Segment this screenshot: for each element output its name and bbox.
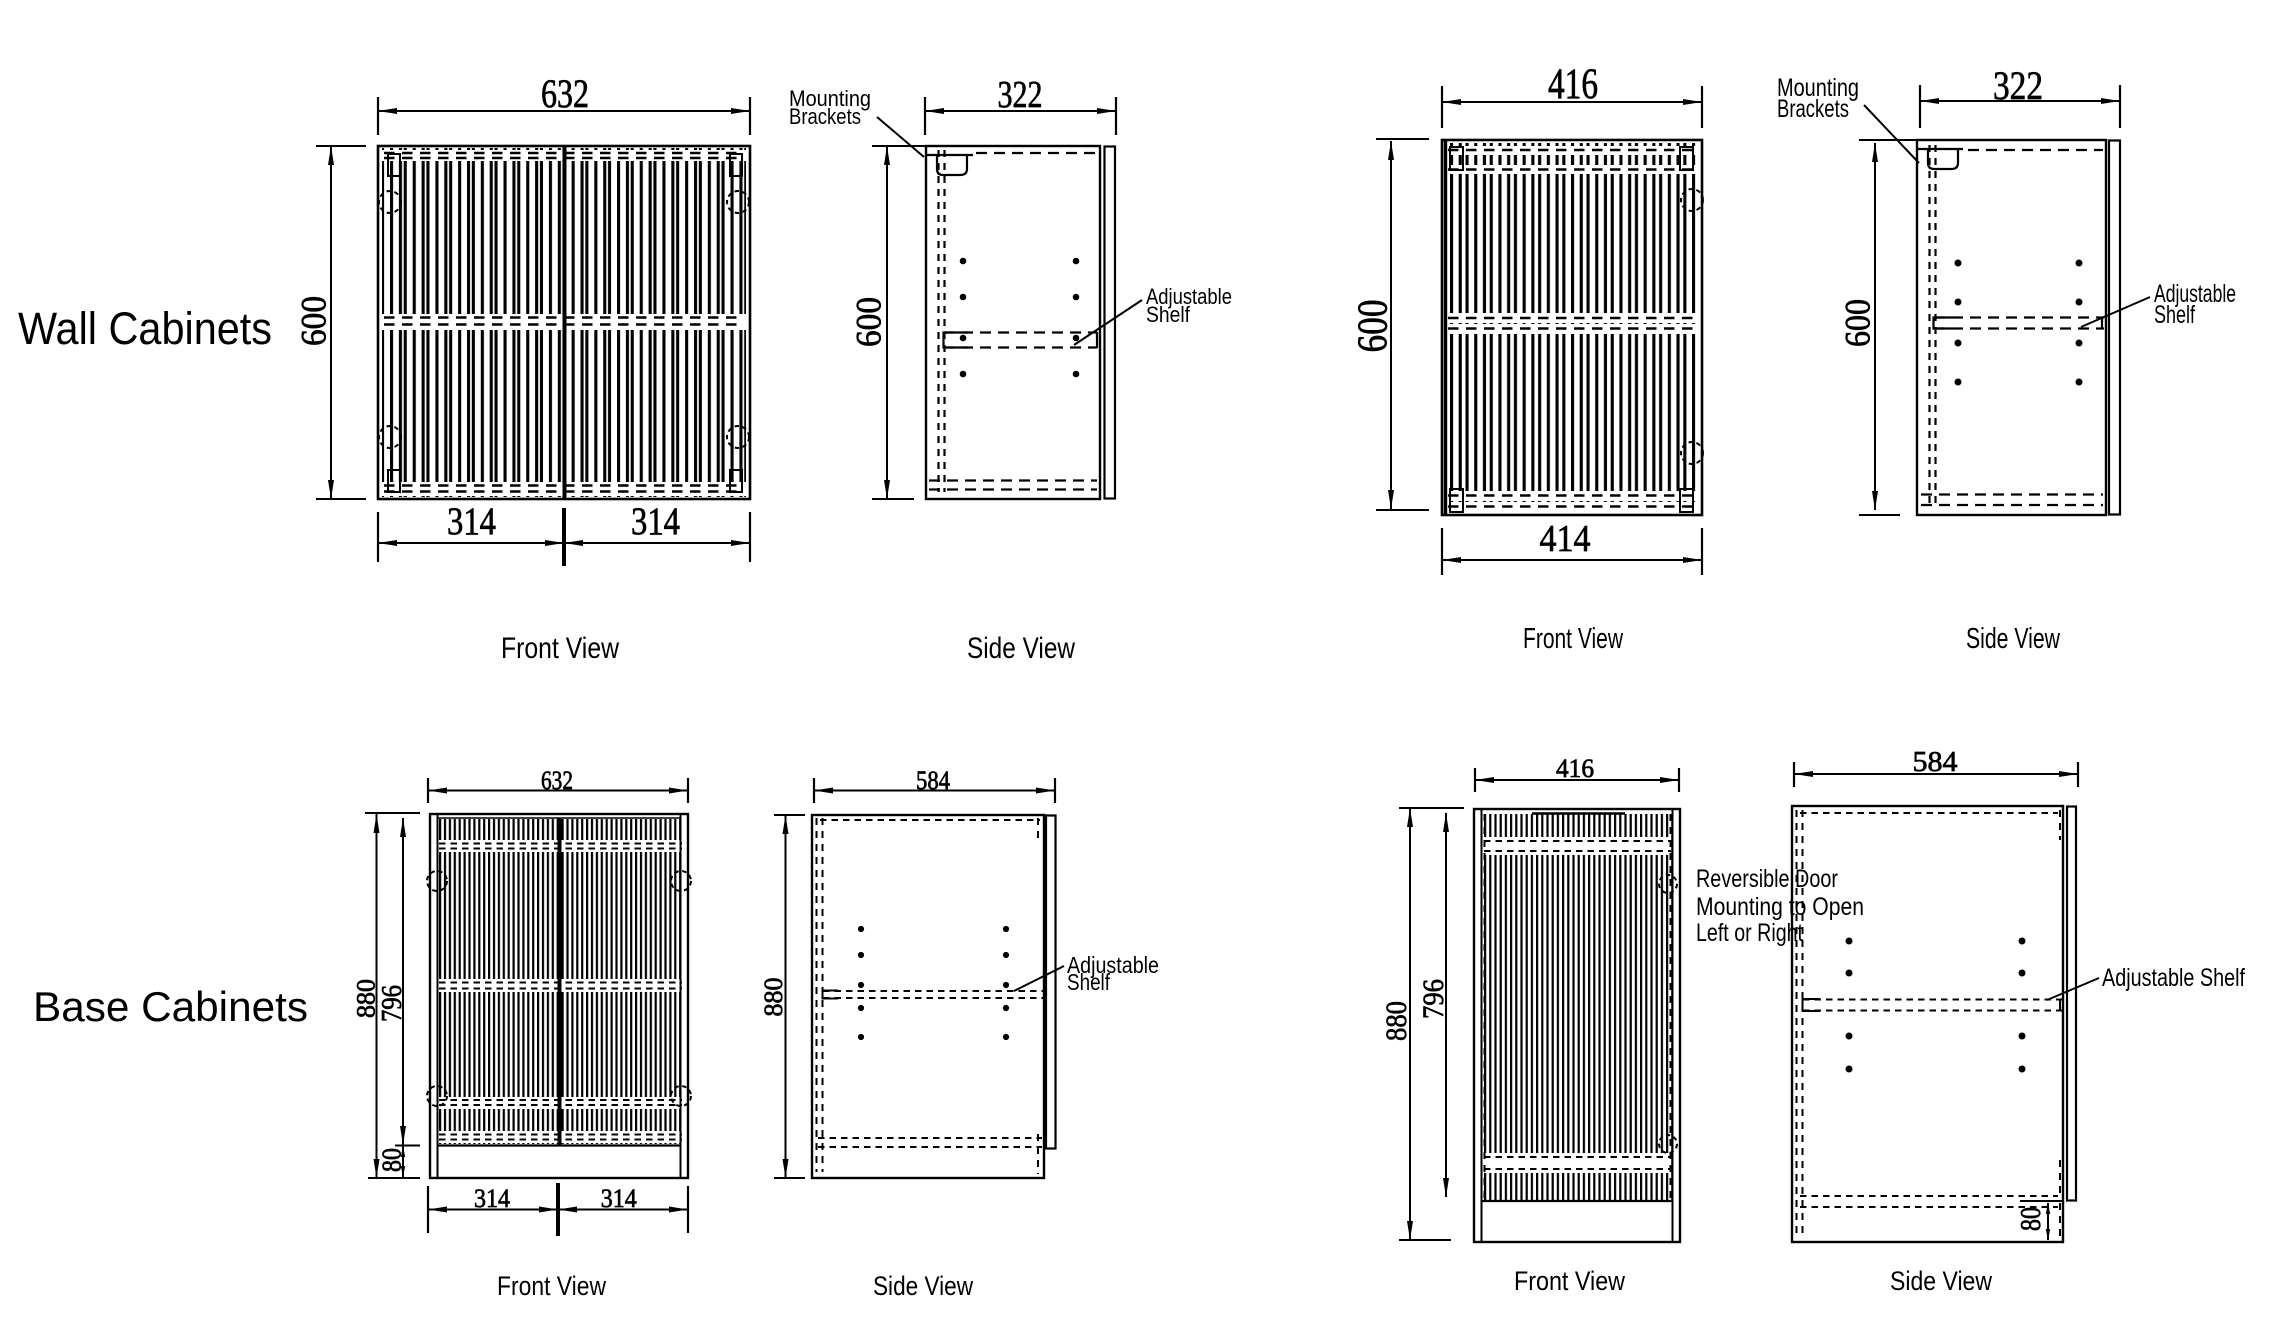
svg-text:880: 880 <box>759 978 788 1017</box>
svg-text:Side View: Side View <box>1966 623 2061 655</box>
svg-text:Base Cabinets: Base Cabinets <box>33 983 308 1030</box>
svg-text:Side View: Side View <box>1890 1266 1992 1296</box>
svg-text:Brackets: Brackets <box>789 104 861 129</box>
svg-text:Front View: Front View <box>501 632 619 665</box>
svg-text:416: 416 <box>1548 61 1598 108</box>
svg-text:600: 600 <box>1350 300 1396 353</box>
svg-text:Front View: Front View <box>497 1271 606 1301</box>
svg-text:600: 600 <box>293 296 333 346</box>
svg-text:632: 632 <box>541 71 589 116</box>
svg-text:880: 880 <box>1380 1001 1413 1041</box>
svg-text:Left or Right: Left or Right <box>1696 919 1803 947</box>
svg-text:Front View: Front View <box>1523 623 1624 655</box>
svg-text:Shelf: Shelf <box>1146 302 1191 327</box>
svg-text:80: 80 <box>2015 1207 2047 1231</box>
svg-text:Reversible Door: Reversible Door <box>1696 865 1838 893</box>
svg-text:416: 416 <box>1556 754 1594 783</box>
svg-text:Side View: Side View <box>967 632 1075 665</box>
svg-text:Shelf: Shelf <box>2154 301 2195 329</box>
svg-text:Adjustable Shelf: Adjustable Shelf <box>2102 964 2245 992</box>
svg-text:Side View: Side View <box>873 1271 973 1301</box>
svg-text:Brackets: Brackets <box>1777 95 1849 123</box>
svg-text:322: 322 <box>998 74 1043 116</box>
svg-text:Front View: Front View <box>1514 1266 1625 1296</box>
svg-text:Wall Cabinets: Wall Cabinets <box>18 303 272 354</box>
svg-text:314: 314 <box>447 500 496 543</box>
svg-text:Mounting to Open: Mounting to Open <box>1696 893 1864 921</box>
svg-text:600: 600 <box>848 297 888 347</box>
svg-text:414: 414 <box>1540 518 1591 560</box>
svg-text:314: 314 <box>631 500 680 543</box>
svg-text:600: 600 <box>1837 299 1877 347</box>
svg-text:Shelf: Shelf <box>1067 969 1110 995</box>
